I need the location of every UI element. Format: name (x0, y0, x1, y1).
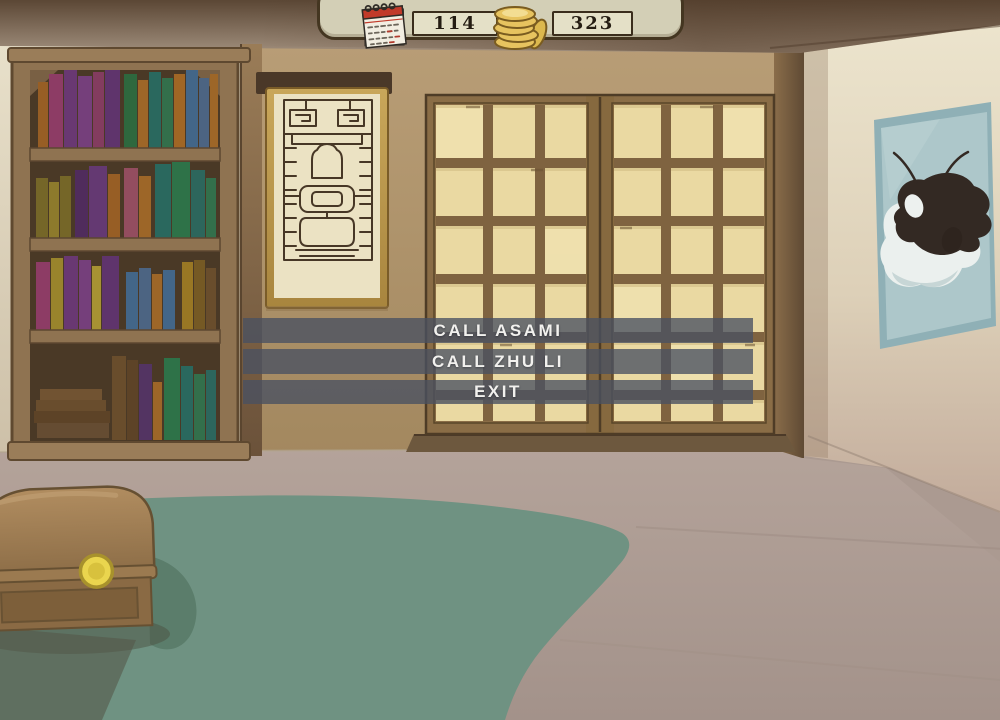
menu-item-call-zhu-li[interactable]: CALL ZHU LI (243, 349, 753, 374)
money-counter: 323 (552, 11, 633, 36)
bookshelf (8, 48, 250, 460)
calendar-icon (350, 1, 416, 49)
coins-icon (491, 2, 553, 50)
corner-pillar (774, 44, 804, 458)
menu-item-label: CALL ASAMI (434, 321, 563, 340)
menu-item-label: EXIT (474, 382, 522, 401)
menu-item-exit[interactable]: EXIT (243, 380, 753, 404)
game-screen: 114 323 CALL ASAMI CALL ZHU LI EX (0, 0, 1000, 720)
menu-item-label: CALL ZHU LI (432, 352, 564, 371)
wall-scroll (256, 72, 392, 311)
koi-painting (874, 102, 996, 349)
menu-item-call-asami[interactable]: CALL ASAMI (243, 318, 753, 343)
day-counter: 114 (412, 11, 498, 36)
